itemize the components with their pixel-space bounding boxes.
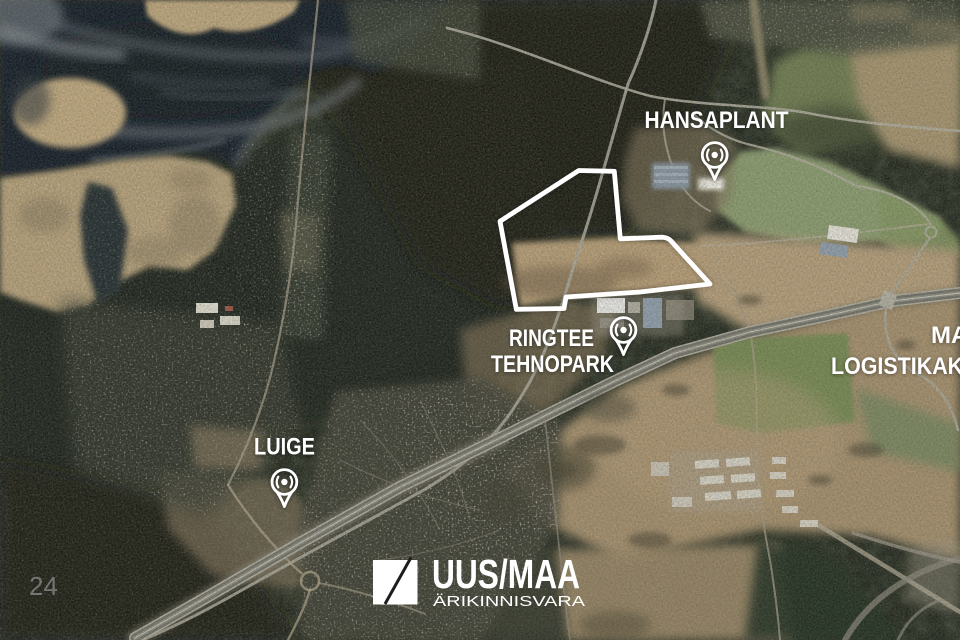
svg-text:MAXIMA: MAXIMA xyxy=(931,322,960,349)
svg-text:LOGISTIKAKESKUS: LOGISTIKAKESKUS xyxy=(831,353,960,380)
svg-text:ÄRIKINNISVARA: ÄRIKINNISVARA xyxy=(433,593,585,610)
svg-text:RINGTEE: RINGTEE xyxy=(509,325,594,352)
svg-text:UUS/MAA: UUS/MAA xyxy=(432,551,580,597)
svg-text:LUIGE: LUIGE xyxy=(254,434,315,461)
svg-text:HANSAPLANT: HANSAPLANT xyxy=(645,107,789,134)
svg-text:TEHNOPARK: TEHNOPARK xyxy=(491,351,615,378)
svg-text:24: 24 xyxy=(29,571,58,601)
